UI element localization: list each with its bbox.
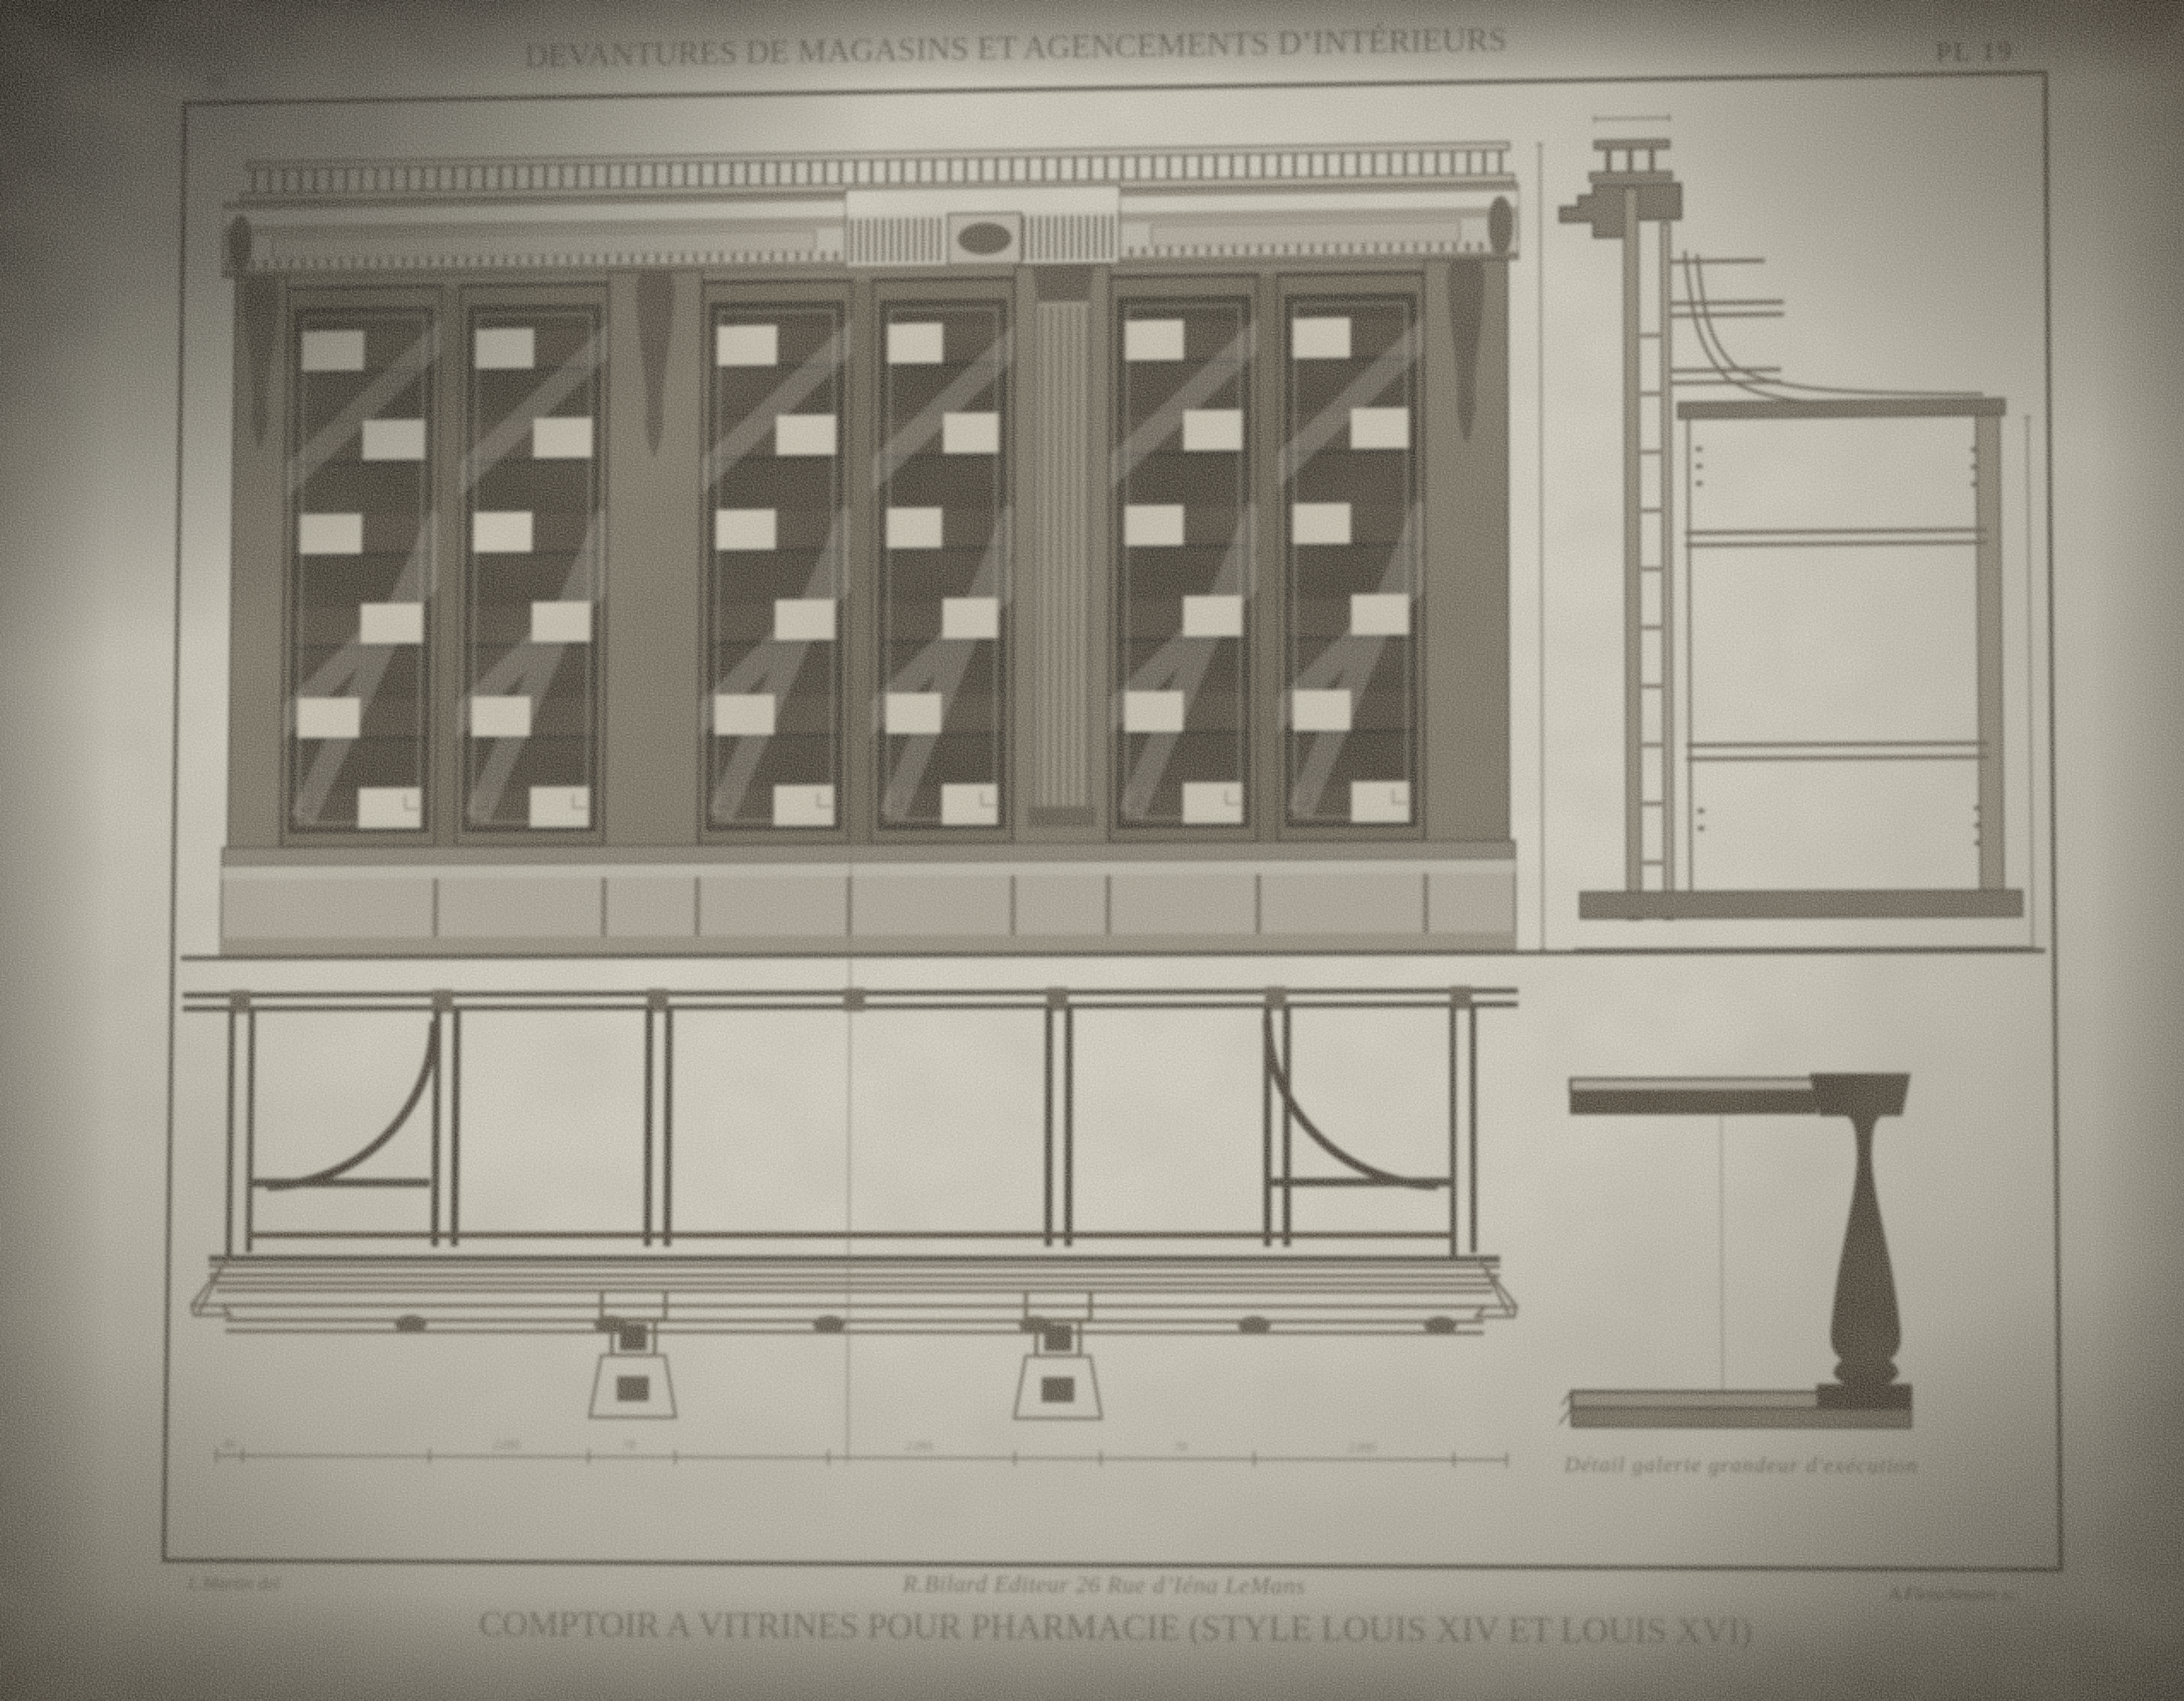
svg-text:Détail galerie grandeur d'exéc: Détail galerie grandeur d'exécution (1564, 1453, 1918, 1478)
svg-text:2.095: 2.095 (1348, 1442, 1376, 1455)
svg-text:70: 70 (623, 1439, 635, 1453)
svg-text:2.095: 2.095 (493, 1439, 521, 1452)
svg-text:L.Martin del: L.Martin del (187, 1573, 280, 1594)
svg-text:46: 46 (223, 1438, 235, 1451)
svg-text:COMPTOIR A VITRINES POUR PHARM: COMPTOIR A VITRINES POUR PHARMACIE (STYL… (479, 1604, 1752, 1650)
svg-text:DEVANTURES DE MAGASINS ET AGEN: DEVANTURES DE MAGASINS ET AGENCEMENTS D’… (524, 21, 1507, 74)
svg-text:2.095: 2.095 (906, 1440, 934, 1454)
svg-text:88: 88 (207, 70, 226, 92)
svg-text:A.Fleischmann sc.: A.Fleischmann sc. (1888, 1583, 2021, 1604)
svg-text:PL 19: PL 19 (1936, 36, 2014, 67)
svg-text:R.Bilard Editeur 26 Rue d’Iéna: R.Bilard Editeur 26 Rue d’Iéna LeMans (902, 1570, 1305, 1599)
svg-text:70: 70 (1174, 1441, 1187, 1455)
